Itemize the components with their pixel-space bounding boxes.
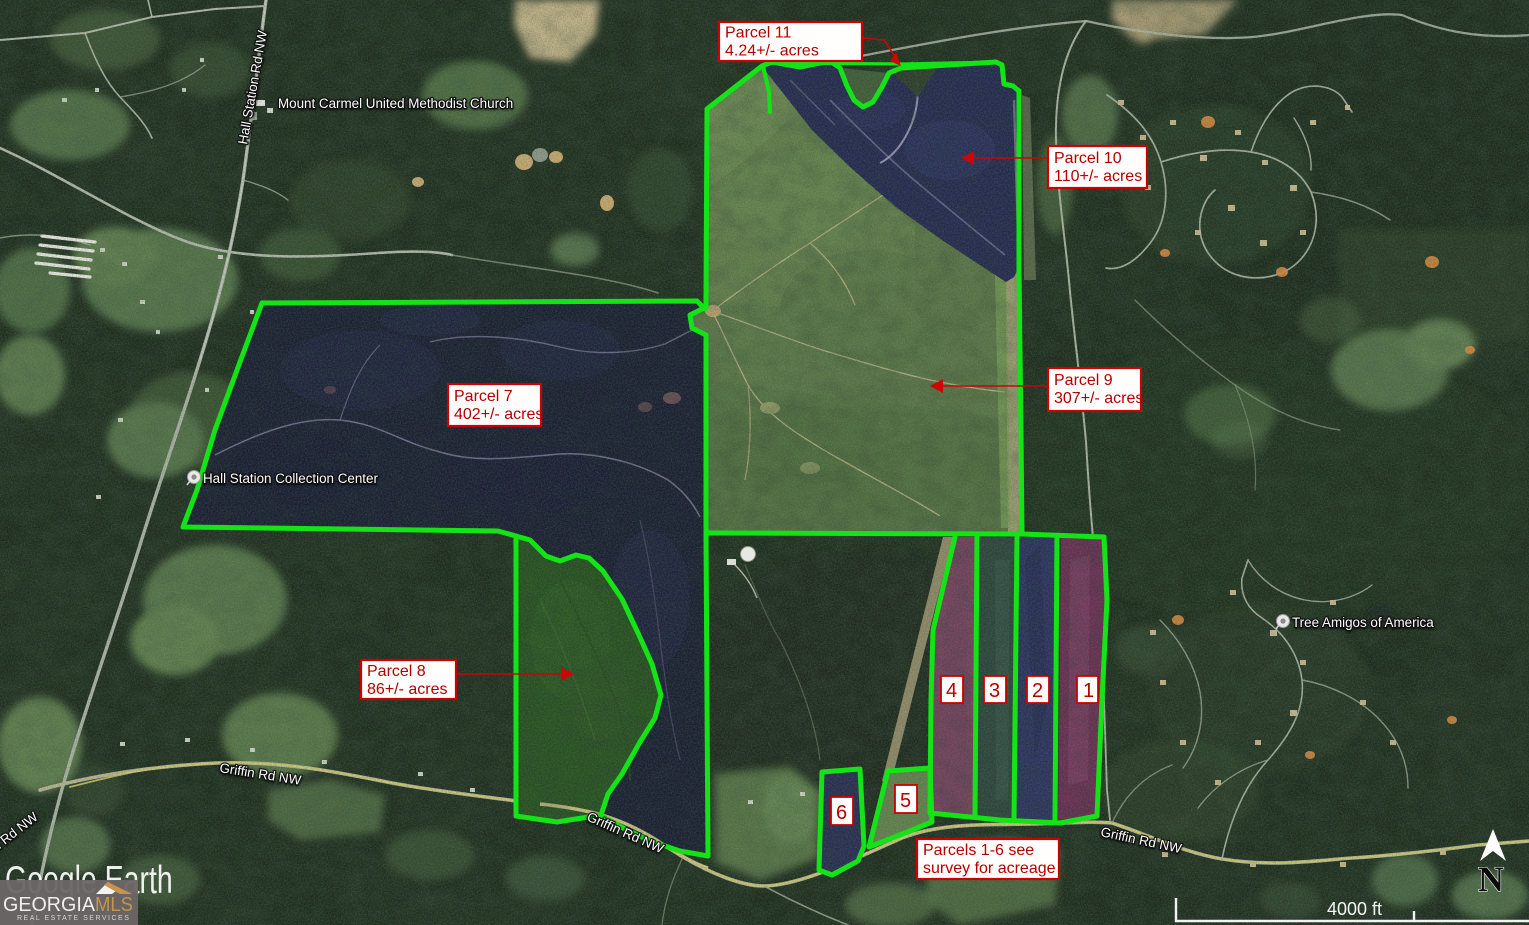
svg-text:GEORGIA: GEORGIA (3, 893, 95, 916)
svg-text:N: N (1478, 859, 1504, 899)
svg-text:2: 2 (1032, 680, 1043, 702)
svg-text:Parcel 7: Parcel 7 (454, 388, 513, 405)
svg-text:survey for acreage: survey for acreage (923, 860, 1056, 877)
svg-text:MLS: MLS (95, 893, 133, 916)
svg-text:Parcel 8: Parcel 8 (367, 663, 426, 680)
svg-text:6: 6 (836, 802, 847, 824)
svg-text:Parcel 11: Parcel 11 (725, 25, 792, 42)
svg-text:Parcel 9: Parcel 9 (1054, 372, 1113, 389)
svg-text:Mount Carmel United Methodist: Mount Carmel United Methodist Church (278, 96, 513, 111)
svg-text:REAL ESTATE SERVICES: REAL ESTATE SERVICES (17, 915, 130, 922)
svg-text:4.24+/- acres: 4.24+/- acres (725, 43, 819, 60)
svg-text:Parcel 10: Parcel 10 (1054, 150, 1122, 167)
svg-text:4000 ft: 4000 ft (1327, 899, 1382, 919)
svg-text:307+/- acres: 307+/- acres (1054, 390, 1143, 407)
svg-text:86+/- acres: 86+/- acres (367, 681, 447, 698)
svg-text:Tree Amigos of America: Tree Amigos of America (1292, 615, 1434, 630)
svg-text:3: 3 (989, 680, 1000, 702)
svg-text:Parcels 1-6 see: Parcels 1-6 see (923, 842, 1034, 859)
svg-text:5: 5 (900, 790, 911, 812)
svg-text:402+/- acres: 402+/- acres (454, 406, 543, 423)
svg-text:1: 1 (1083, 680, 1094, 702)
svg-text:110+/- acres: 110+/- acres (1054, 168, 1142, 185)
svg-text:4: 4 (946, 680, 957, 702)
svg-text:Hall Station Collection Center: Hall Station Collection Center (203, 471, 378, 486)
